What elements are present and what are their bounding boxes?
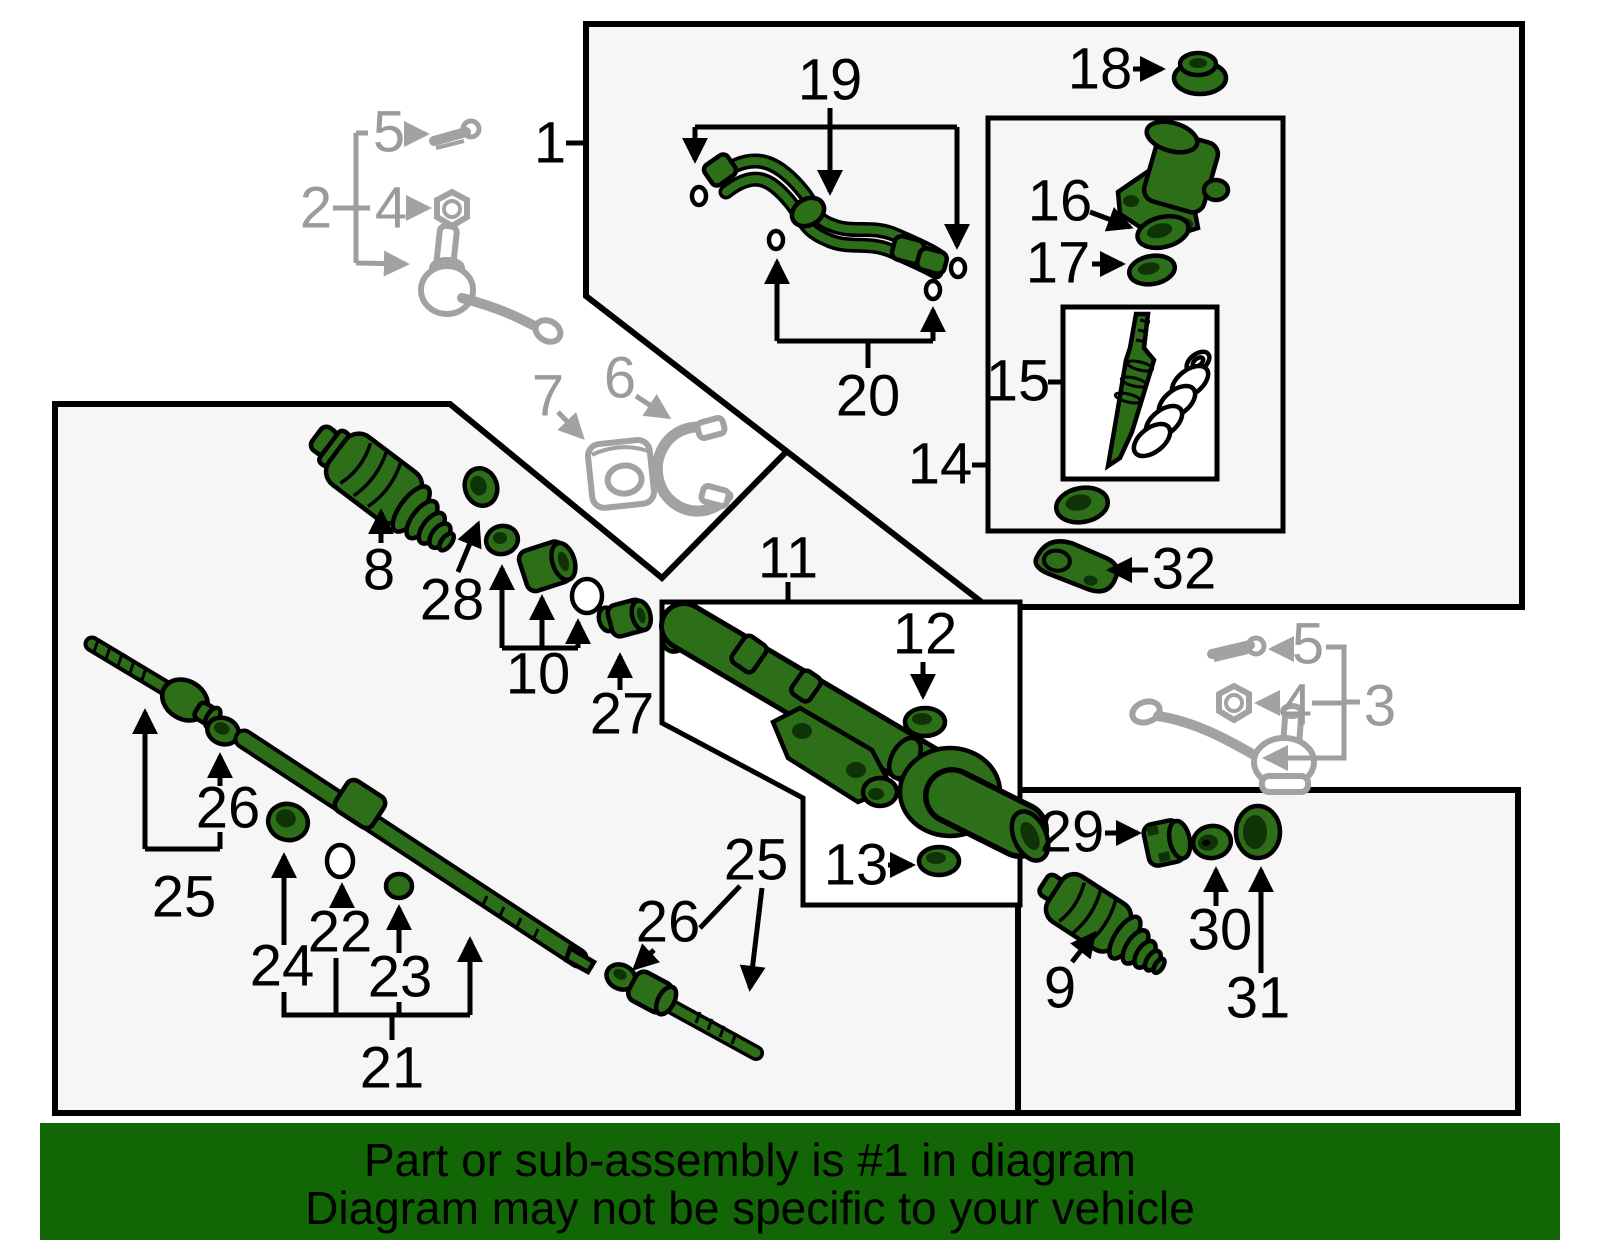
callout-4b: 4 [1280, 673, 1312, 738]
tube-o-ring-b [769, 231, 783, 249]
banner: Part or sub-assembly is #1 in diagram Di… [40, 1123, 1560, 1240]
bushing-bracket-6 [657, 417, 729, 511]
callout-11: 11 [758, 526, 818, 591]
seal-13 [919, 847, 959, 875]
callout-16: 16 [1028, 169, 1093, 234]
parts-diagram-canvas: 1 2 4 5 19 20 18 16 17 15 14 32 6 7 8 28… [0, 0, 1600, 1249]
bushing-block-7 [587, 439, 655, 509]
callout-29: 29 [1040, 800, 1105, 865]
callout-2: 2 [300, 176, 332, 241]
callout-25b: 25 [724, 828, 789, 893]
callout-13: 13 [824, 833, 889, 898]
callout-18: 18 [1068, 37, 1133, 102]
tie-rod-end-left [421, 225, 564, 346]
callout-7: 7 [532, 364, 564, 429]
callout-8: 8 [363, 538, 395, 603]
callout-32: 32 [1152, 537, 1217, 602]
callout-9: 9 [1044, 956, 1076, 1021]
callout-31: 31 [1226, 966, 1291, 1031]
callout-6: 6 [604, 346, 636, 411]
o-ring-10c [572, 579, 602, 613]
callout-4a: 4 [375, 176, 407, 241]
callout-5a: 5 [373, 100, 405, 165]
callout-3: 3 [1364, 674, 1396, 739]
callout-27: 27 [590, 682, 655, 747]
callout-30: 30 [1188, 898, 1253, 963]
o-ring-22 [327, 845, 353, 877]
callout-19: 19 [798, 48, 863, 113]
callout-12: 12 [893, 602, 958, 667]
castle-nut-right-icon [1219, 686, 1249, 720]
callout-24: 24 [250, 934, 315, 999]
callout-14: 14 [908, 432, 973, 497]
callout-21: 21 [360, 1036, 425, 1101]
callout-10: 10 [506, 642, 571, 707]
callout-20: 20 [836, 364, 901, 429]
callout-28: 28 [420, 568, 485, 633]
tube-o-ring-d [926, 281, 940, 299]
callout-26b: 26 [636, 890, 701, 955]
cotter-pin-eye [463, 121, 479, 137]
callout-17: 17 [1026, 231, 1091, 296]
banner-line-2: Diagram may not be specific to your vehi… [305, 1182, 1195, 1234]
callout-26a: 26 [196, 776, 261, 841]
callout-5b: 5 [1292, 612, 1324, 677]
plug-23 [386, 874, 412, 898]
callout-23: 23 [368, 945, 433, 1010]
callout-22: 22 [308, 900, 373, 965]
mount-bushing-parts-gray [587, 417, 730, 511]
banner-line-1: Part or sub-assembly is #1 in diagram [364, 1134, 1136, 1186]
tube-o-ring-c [951, 259, 965, 277]
callout-15: 15 [986, 349, 1051, 414]
callout-1: 1 [534, 111, 566, 176]
spacer-29 [1142, 817, 1194, 867]
tube-o-ring-a [692, 187, 706, 205]
callout-25a: 25 [152, 865, 217, 930]
parts-diagram-page: 1 2 4 5 19 20 18 16 17 15 14 32 6 7 8 28… [0, 0, 1600, 1249]
ring-31 [1236, 806, 1280, 858]
grommet-12 [905, 708, 945, 736]
castle-nut-icon [437, 192, 467, 226]
